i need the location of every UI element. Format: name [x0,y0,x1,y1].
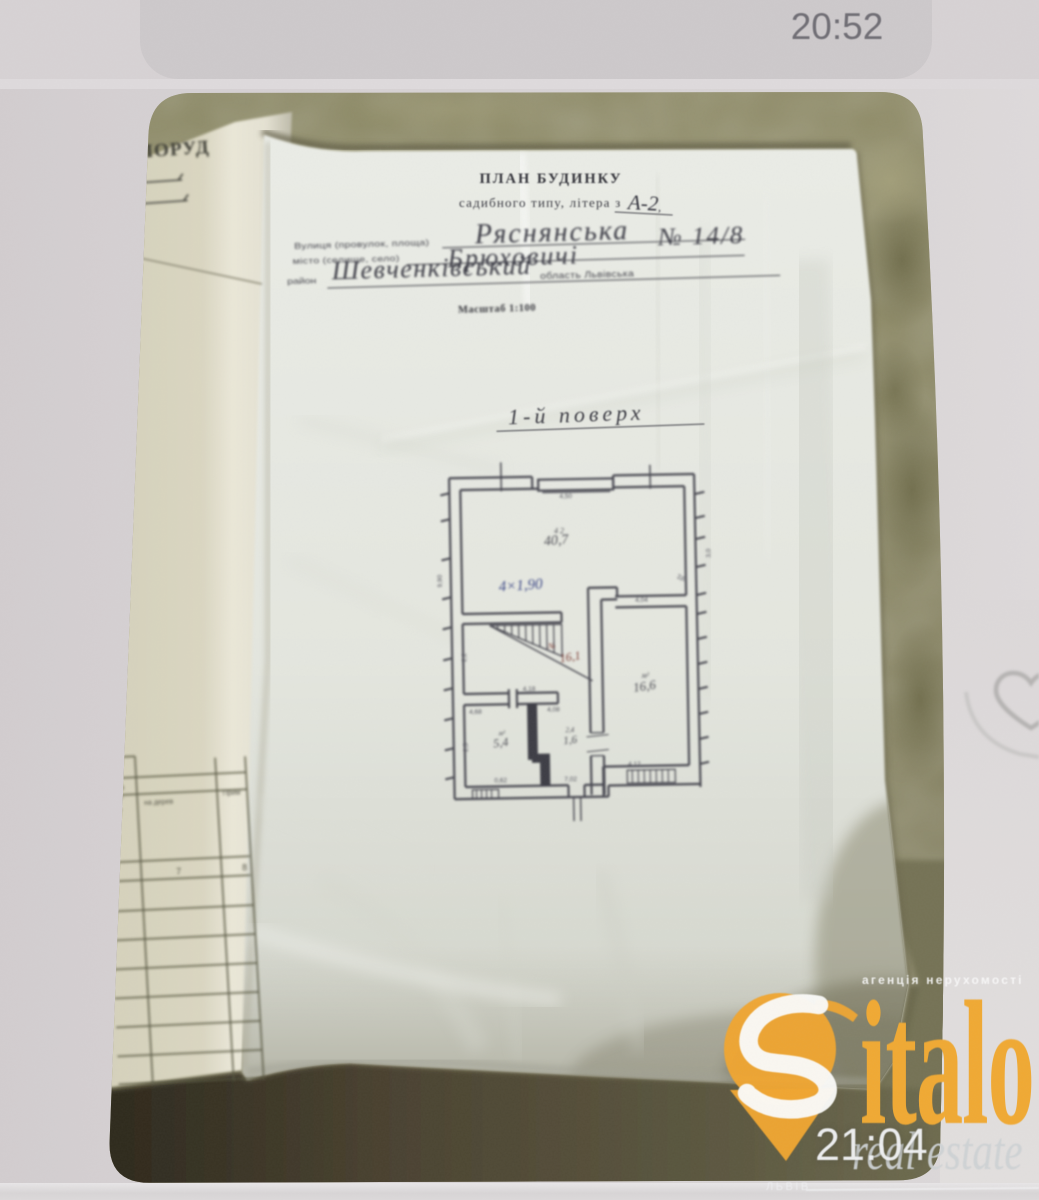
svg-text:м²: м² [640,671,649,680]
svg-text:1,6: 1,6 [563,734,579,748]
svg-text:2,5: 2,5 [463,743,470,753]
svg-text:0,62: 0,62 [494,777,507,784]
svg-text:на дерев: на дерев [144,799,174,807]
svg-text:Прим: Прим [223,790,241,798]
svg-text:4,68: 4,68 [469,709,482,716]
svg-text:7,02: 7,02 [564,776,577,783]
svg-text:7: 7 [176,866,181,876]
svg-text:4 2: 4 2 [554,526,564,535]
svg-text:№: № [547,641,556,650]
svg-text:нази: нази [109,785,124,793]
svg-text:м²: м² [497,729,506,737]
svg-text:при-: при- [110,795,125,803]
svg-text:4×1,90: 4×1,90 [498,576,543,595]
svg-text:4,08: 4,08 [547,706,560,713]
svg-text:2,4: 2,4 [565,726,574,734]
svg-text:9,90: 9,90 [437,574,444,587]
svg-text:3,0: 3,0 [705,548,712,558]
svg-text:2,2: 2,2 [461,653,468,663]
svg-text:4,12: 4,12 [628,761,641,768]
svg-text:8: 8 [242,862,247,872]
svg-text:16,1: 16,1 [559,648,582,665]
svg-text:4,50: 4,50 [559,493,572,500]
svg-text:мщ.: мщ. [110,805,123,813]
svg-text:4,18: 4,18 [523,686,536,693]
svg-text:2д: 2д [676,573,685,582]
svg-text:4,04: 4,04 [635,597,648,604]
